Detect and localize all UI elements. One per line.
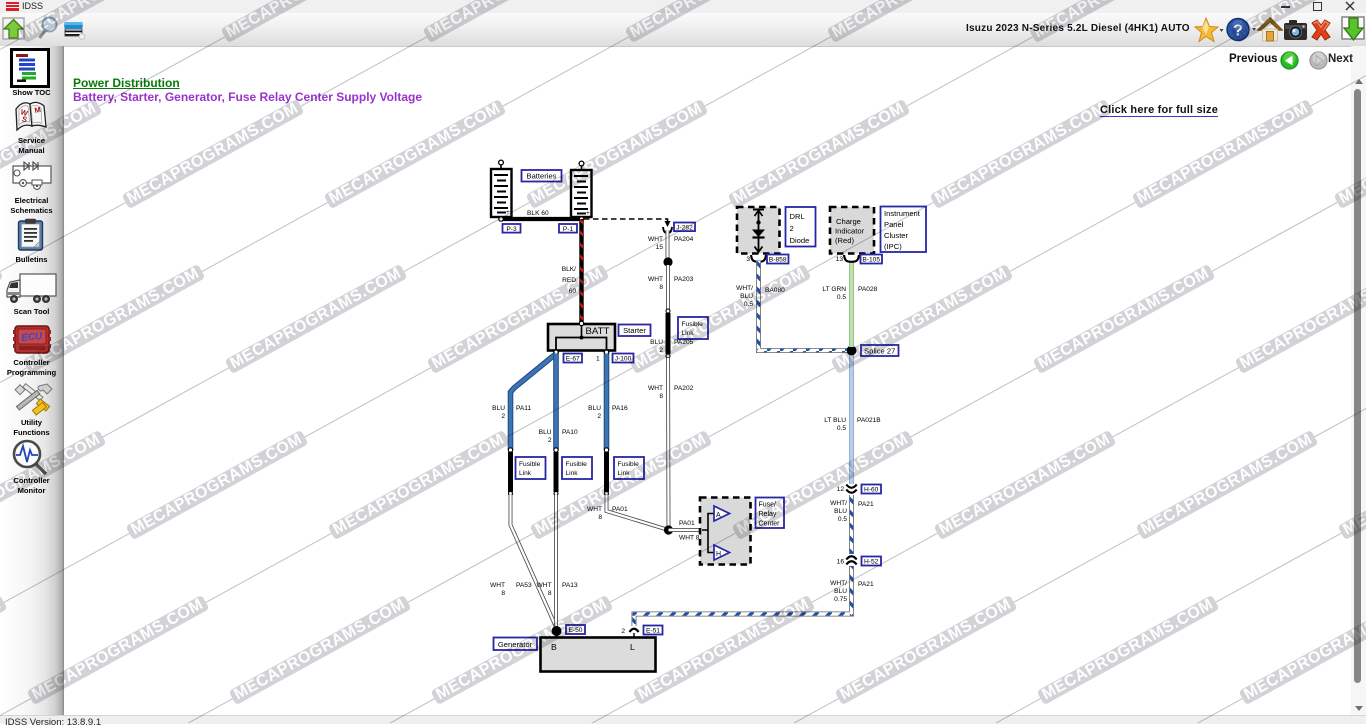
- svg-text:DRL: DRL: [790, 212, 805, 221]
- svg-text:J-282: J-282: [676, 224, 693, 231]
- svg-text:Generator: Generator: [498, 640, 533, 649]
- svg-text:12: 12: [837, 486, 845, 493]
- svg-text:Cluster: Cluster: [884, 231, 909, 240]
- svg-text:BLU: BLU: [539, 429, 552, 436]
- svg-text:2: 2: [659, 347, 663, 354]
- svg-text:(IPC): (IPC): [884, 242, 902, 251]
- svg-text:+: +: [586, 210, 590, 217]
- svg-text:BATT: BATT: [586, 326, 610, 337]
- svg-text:RED: RED: [562, 277, 576, 284]
- svg-text:Starter: Starter: [623, 326, 646, 335]
- svg-text:PA202: PA202: [674, 385, 694, 392]
- svg-text:8: 8: [598, 514, 602, 521]
- svg-text:0.75: 0.75: [834, 596, 847, 603]
- svg-text:3: 3: [746, 256, 750, 263]
- svg-text:BLU: BLU: [492, 405, 505, 412]
- svg-text:WHT: WHT: [587, 506, 602, 513]
- svg-text:PA01: PA01: [679, 520, 695, 527]
- svg-text:2: 2: [621, 628, 625, 635]
- svg-text:LT GRN: LT GRN: [822, 286, 846, 293]
- svg-text:WHT/: WHT/: [830, 500, 847, 507]
- svg-text:0.5: 0.5: [837, 425, 846, 432]
- svg-text:0.5: 0.5: [838, 516, 847, 523]
- svg-text:Splice 27: Splice 27: [864, 347, 895, 356]
- svg-text:P-3: P-3: [506, 226, 517, 233]
- svg-text:0.5: 0.5: [837, 294, 846, 301]
- svg-text:PA21: PA21: [858, 501, 874, 508]
- svg-text:Fuse/: Fuse/: [759, 502, 777, 509]
- svg-text:Indicator: Indicator: [835, 227, 865, 236]
- svg-text:8: 8: [501, 590, 505, 597]
- svg-text:PA01: PA01: [612, 506, 628, 513]
- svg-text:WHT/: WHT/: [736, 285, 753, 292]
- svg-text:WHT: WHT: [648, 236, 663, 243]
- svg-text:BLU: BLU: [588, 405, 601, 412]
- svg-text:PA204: PA204: [674, 236, 694, 243]
- svg-text:Link: Link: [682, 330, 695, 337]
- svg-text:PA53: PA53: [516, 582, 532, 589]
- svg-text:BLK 60: BLK 60: [527, 210, 549, 217]
- svg-text:BLU: BLU: [740, 293, 753, 300]
- svg-text:Link: Link: [618, 470, 631, 477]
- svg-text:8: 8: [659, 393, 663, 400]
- svg-text:0.5: 0.5: [744, 301, 753, 308]
- svg-text:P-1: P-1: [563, 226, 574, 233]
- svg-text:WHT: WHT: [648, 385, 663, 392]
- svg-text:BLK/: BLK/: [562, 266, 576, 273]
- svg-text:Charge: Charge: [836, 217, 861, 226]
- svg-text:WHT/: WHT/: [830, 580, 847, 587]
- svg-text:WHT: WHT: [536, 582, 551, 589]
- svg-text:PA028: PA028: [858, 286, 878, 293]
- svg-text:1: 1: [596, 356, 600, 363]
- svg-text:Center: Center: [759, 521, 781, 528]
- svg-text:2: 2: [501, 413, 505, 420]
- svg-text:Fusible: Fusible: [618, 461, 640, 468]
- svg-text:E-67: E-67: [566, 356, 580, 363]
- svg-text:60: 60: [569, 288, 577, 295]
- svg-text:PA10: PA10: [562, 429, 578, 436]
- svg-text:13: 13: [836, 256, 844, 263]
- svg-text:8: 8: [548, 590, 552, 597]
- svg-text:(Red): (Red): [835, 236, 854, 245]
- svg-text:PA16: PA16: [612, 405, 628, 412]
- svg-text:Diode: Diode: [790, 236, 810, 245]
- svg-text:H-60: H-60: [864, 487, 879, 494]
- svg-text:WHT: WHT: [490, 582, 505, 589]
- svg-text:Fusible: Fusible: [519, 461, 541, 468]
- svg-text:PA205: PA205: [674, 339, 694, 346]
- svg-text:H: H: [716, 551, 721, 558]
- svg-text:+: +: [506, 209, 510, 216]
- svg-text:BA080: BA080: [765, 287, 785, 294]
- svg-text:2: 2: [548, 437, 552, 444]
- svg-text:J-100: J-100: [615, 356, 632, 363]
- svg-text:Panel: Panel: [884, 220, 904, 229]
- svg-text:Fusible: Fusible: [682, 321, 704, 328]
- svg-text:BLU: BLU: [650, 339, 663, 346]
- svg-text:A: A: [716, 512, 721, 519]
- svg-text:16: 16: [837, 559, 845, 566]
- svg-text:BLU: BLU: [834, 588, 847, 595]
- svg-text:PA13: PA13: [562, 582, 578, 589]
- svg-text:8: 8: [659, 284, 663, 291]
- svg-text:Link: Link: [519, 470, 532, 477]
- svg-text:Instrument: Instrument: [884, 209, 921, 218]
- svg-text:Link: Link: [566, 470, 579, 477]
- svg-text:PA203: PA203: [674, 276, 694, 283]
- svg-text:PA11: PA11: [516, 405, 531, 412]
- svg-text:B-105: B-105: [862, 257, 880, 264]
- svg-text:E-50: E-50: [569, 627, 583, 634]
- svg-text:B: B: [551, 642, 557, 652]
- svg-text:L: L: [630, 642, 635, 652]
- svg-text:15: 15: [656, 244, 664, 251]
- svg-text:WHT 8: WHT 8: [679, 535, 700, 542]
- svg-text:BLU: BLU: [834, 508, 847, 515]
- svg-text:Relay: Relay: [759, 511, 777, 518]
- svg-text:2: 2: [597, 413, 601, 420]
- svg-text:H-52: H-52: [864, 559, 879, 566]
- svg-text:WHT: WHT: [648, 276, 663, 283]
- svg-text:Batteries: Batteries: [527, 172, 557, 181]
- svg-text:Fusible: Fusible: [566, 461, 588, 468]
- svg-text:PA21: PA21: [858, 581, 874, 588]
- svg-text:LT BLU: LT BLU: [824, 417, 846, 424]
- svg-text:B-858: B-858: [769, 257, 787, 264]
- svg-text:PA021B: PA021B: [857, 417, 881, 424]
- svg-text:E-51: E-51: [646, 628, 660, 635]
- svg-text:2: 2: [790, 224, 794, 233]
